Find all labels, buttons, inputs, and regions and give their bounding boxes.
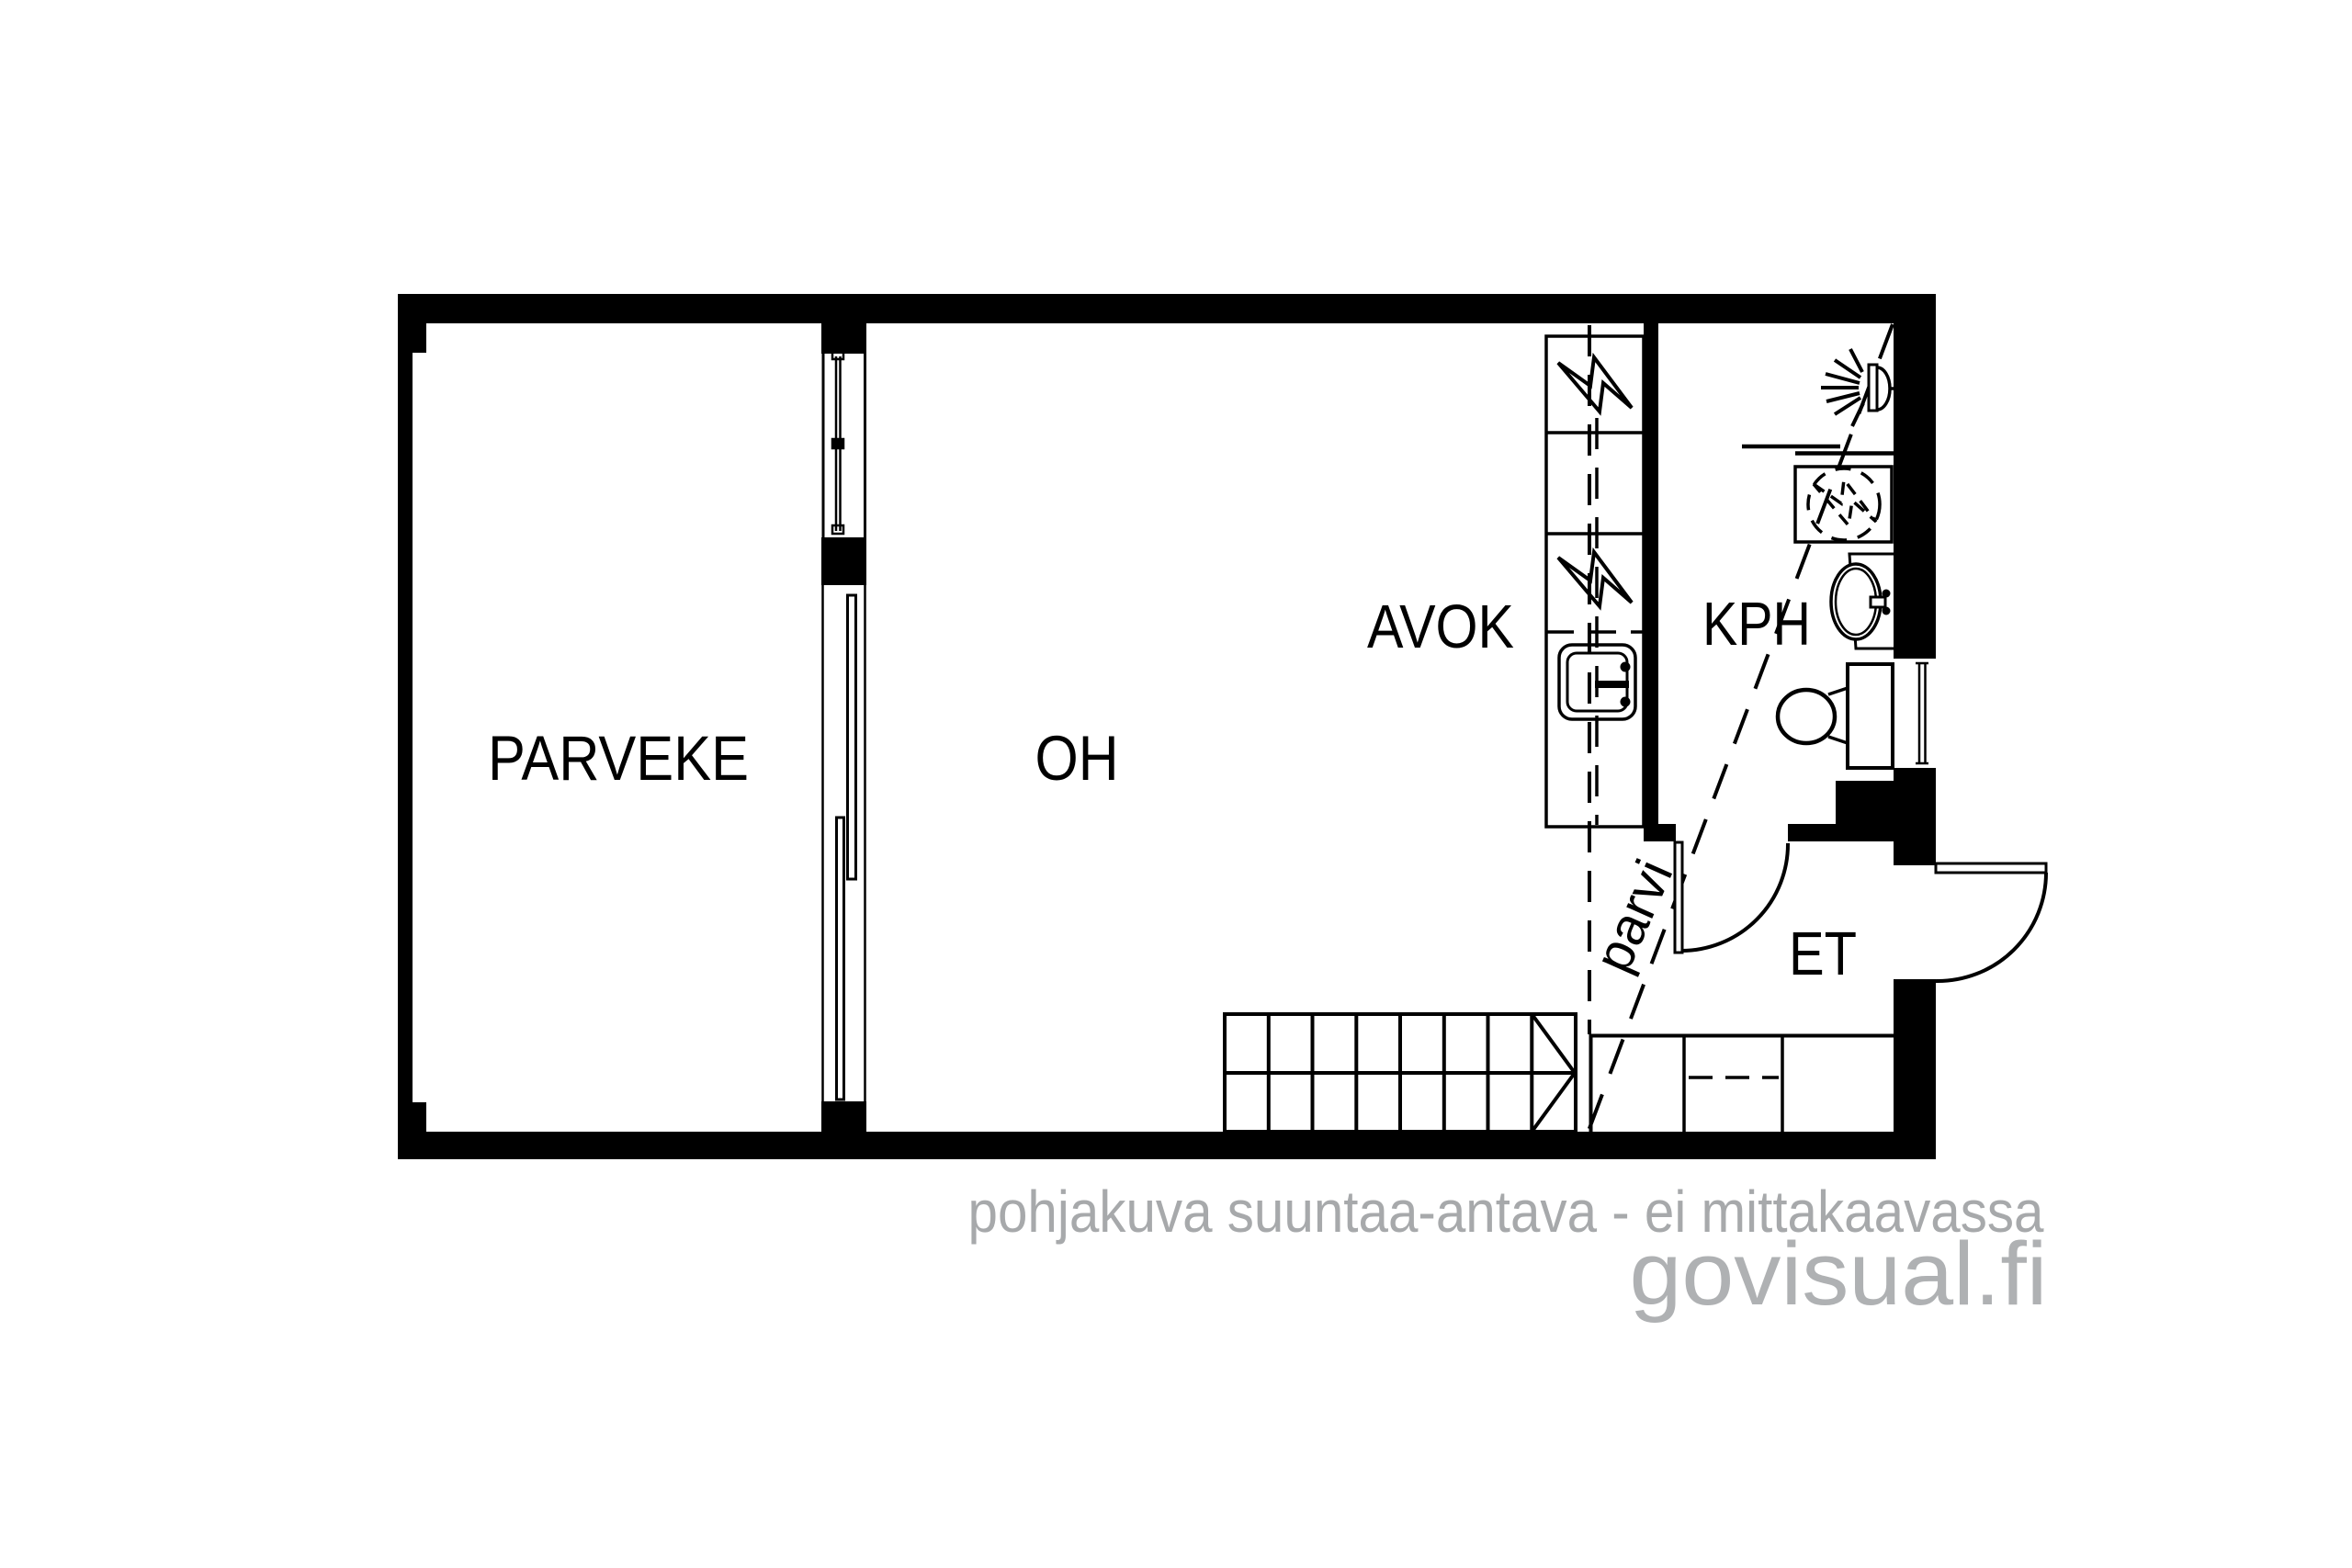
svg-text:ET: ET [1789, 919, 1857, 988]
svg-text:govisual.fi: govisual.fi [1630, 1224, 2048, 1324]
svg-text:PARVEKE: PARVEKE [488, 723, 749, 794]
svg-text:KPH: KPH [1702, 590, 1811, 659]
svg-text:AVOK: AVOK [1367, 592, 1514, 661]
svg-text:OH: OH [1035, 723, 1119, 794]
